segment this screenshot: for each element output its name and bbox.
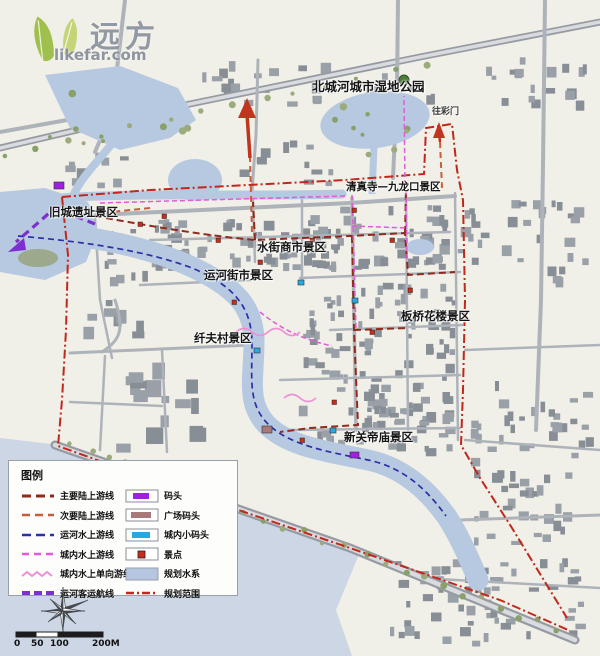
label-mosque-jiulongkou: 清真寺—九龙口景区 [346,179,441,194]
label-wetland-park: 北城河城市湿地公园 [312,76,425,95]
watermark-site: likefar.com [54,46,146,64]
legend-item-wharf: 码头 [125,486,237,506]
water-system-swatch [125,567,159,581]
canal-water-route-swatch [21,528,55,542]
boundary-swatch [125,586,159,600]
legend-panel: 图例 主要陆上游线 次要陆上游线 运河水上游线 [8,460,238,596]
label-fiber-village: 纤夫村景区 [194,330,252,346]
label-canal-street-market: 运河街市景区 [204,267,273,283]
legend-item-city-water-route: 城内水上游线 [21,545,125,565]
label-old-city-ruins: 旧城遗址景区 [49,204,118,220]
main-route-swatch [21,489,55,503]
legend-item-plaza-wharf: 广场码头 [125,506,237,526]
legend-item-boundary: 规划范围 [125,584,237,604]
label-new-guandi-temple: 新关帝庙景区 [344,429,413,445]
scale-tick-200: 200M [92,639,120,649]
label-water-street-market: 水街商市景区 [257,239,326,255]
legend-item-small-wharf: 城内小码头 [125,525,237,545]
label-to-gate: 往彩门 [432,104,459,117]
city-water-route-swatch [21,547,55,561]
planning-map: 远方 likefar.com 北城河城市湿地公园 往彩门 清真寺—九龙口景区 旧… [0,0,600,656]
secondary-route-swatch [21,508,55,522]
scale-tick-100: 100 [50,639,69,649]
wharf-swatch [125,489,159,503]
scenic-spot-swatch [125,547,159,561]
plaza-wharf-swatch [125,508,159,522]
legend-title: 图例 [21,467,237,483]
oneway-route-swatch [21,567,55,581]
scale-tick-0: 0 [14,639,20,649]
legend-item-water-system: 规划水系 [125,564,237,584]
scale-tick-50: 50 [31,639,44,649]
legend-item-secondary-route: 次要陆上游线 [21,506,125,526]
label-banqiao-flower: 板桥花楼景区 [401,308,470,324]
legend-item-oneway-route: 城内水上单向游线 [21,564,125,584]
small-wharf-swatch [125,528,159,542]
legend-item-main-route: 主要陆上游线 [21,486,125,506]
legend-item-scenic-spot: 景点 [125,545,237,565]
scale-bar: 0 50 100 200M [12,626,142,654]
legend-item-canal-water-route: 运河水上游线 [21,525,125,545]
